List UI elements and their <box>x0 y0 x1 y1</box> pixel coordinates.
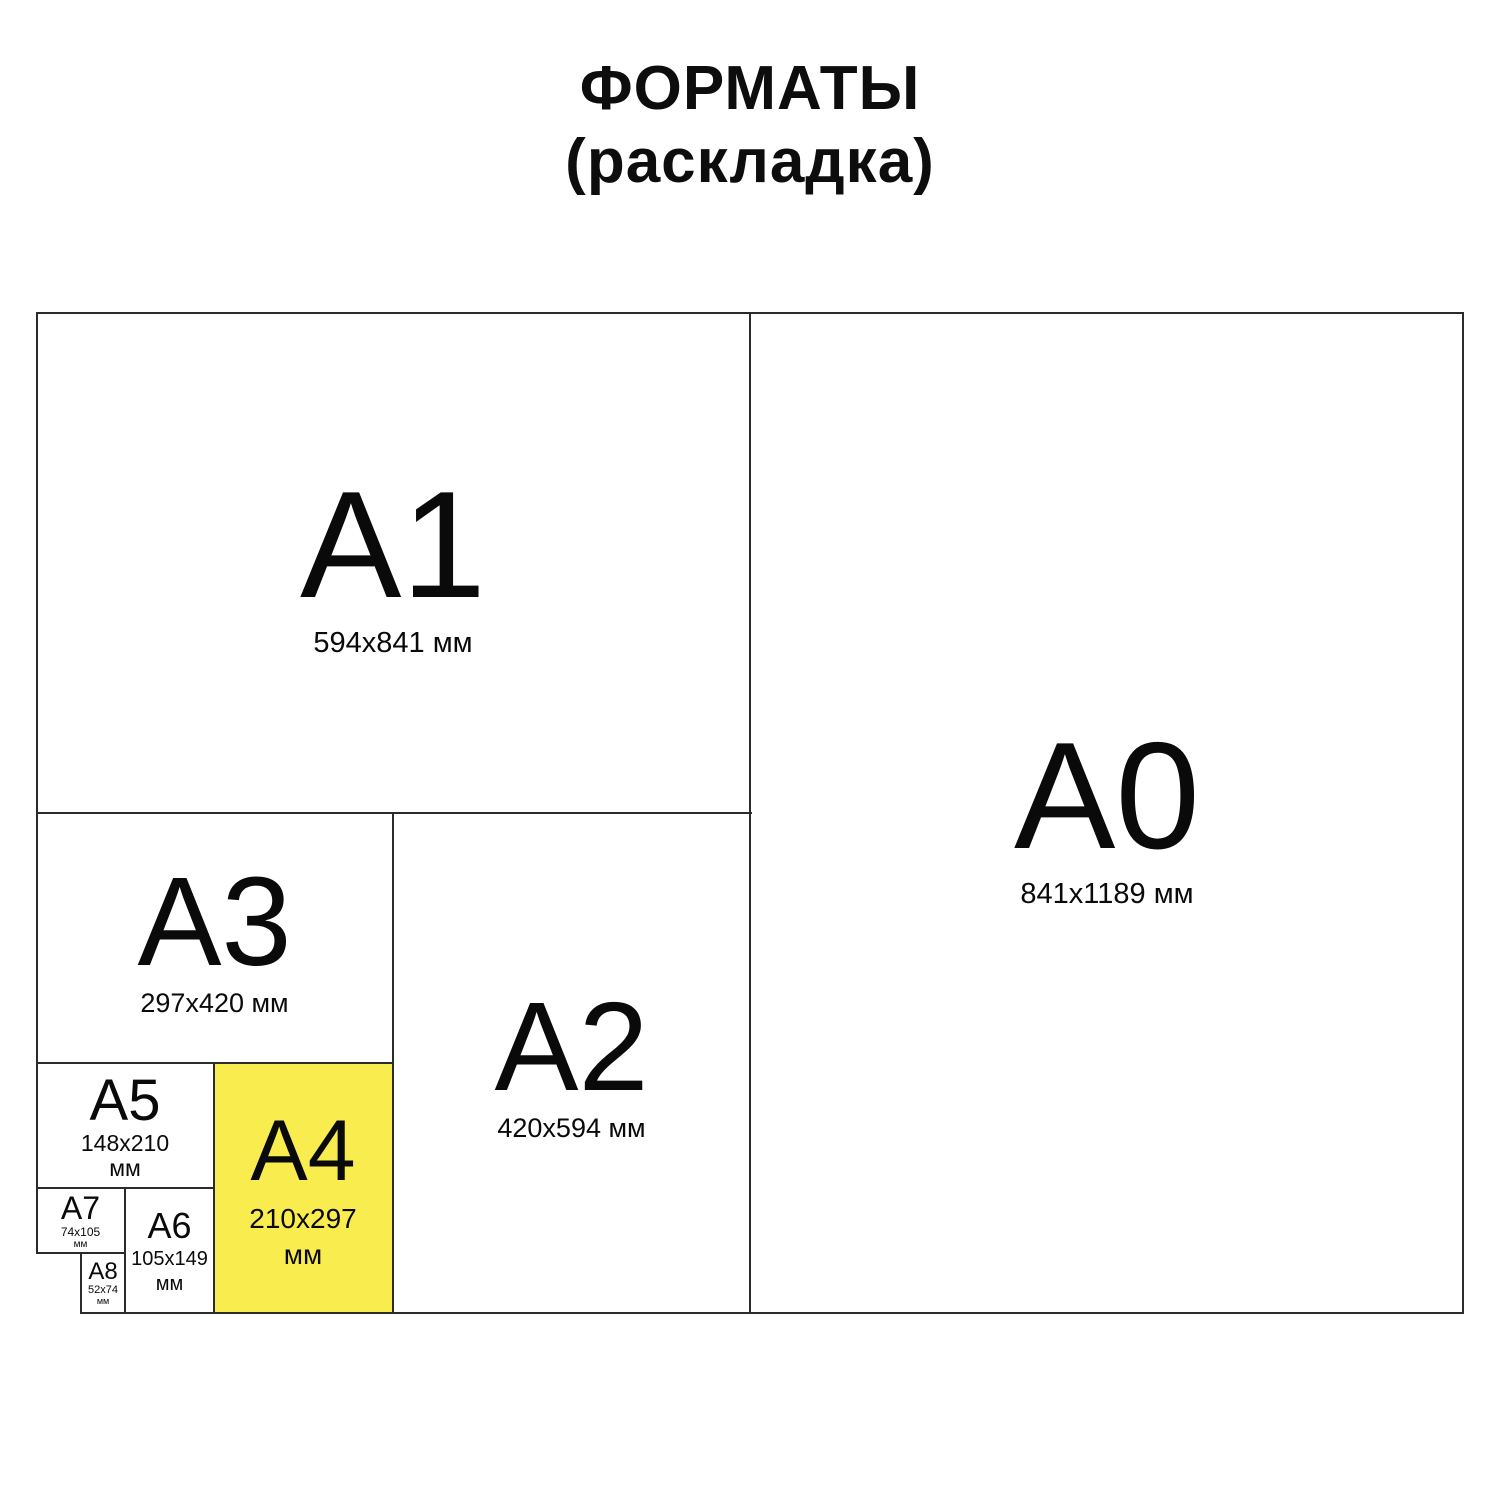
format-dimensions-a7-unit: мм <box>74 1240 88 1250</box>
format-box-a2: A2 420x594 мм <box>393 813 750 1313</box>
format-label-a8: A8 <box>88 1260 117 1284</box>
format-dimensions-a6-unit: мм <box>156 1274 184 1294</box>
paper-formats-diagram: A1 594x841 мм A0 841x1189 мм A3 297x420 … <box>0 0 1500 1500</box>
format-dimensions-a5-unit: мм <box>109 1157 141 1180</box>
format-dimensions-a4: 210x297 <box>249 1205 356 1233</box>
format-dimensions-a2: 420x594 мм <box>497 1115 645 1142</box>
page: ФОРМАТЫ (раскладка) A1 594x841 мм A0 841… <box>0 0 1500 1500</box>
format-dimensions-a1: 594x841 мм <box>313 629 472 658</box>
format-box-a0: A0 841x1189 мм <box>750 314 1464 1314</box>
format-dimensions-a8-unit: мм <box>97 1297 109 1306</box>
format-box-a1: A1 594x841 мм <box>36 314 750 812</box>
format-box-a4: A4 210x297 мм <box>213 1063 393 1313</box>
format-dimensions-a5: 148x210 <box>81 1132 169 1155</box>
format-box-a7: A7 74x105 мм <box>36 1188 125 1253</box>
format-box-a3: A3 297x420 мм <box>36 813 393 1063</box>
format-label-a2: A2 <box>494 984 648 1110</box>
format-label-a6: A6 <box>147 1208 191 1244</box>
format-dimensions-a0: 841x1189 мм <box>1020 880 1193 909</box>
format-label-a4: A4 <box>250 1108 355 1194</box>
format-box-a8: A8 52x74 мм <box>81 1253 125 1313</box>
format-box-a5: A5 148x210 мм <box>36 1063 214 1188</box>
format-dimensions-a4-unit: мм <box>284 1241 323 1269</box>
format-label-a3: A3 <box>137 859 291 985</box>
format-dimensions-a3: 297x420 мм <box>140 990 288 1017</box>
format-label-a7: A7 <box>61 1192 100 1224</box>
format-label-a0: A0 <box>1014 720 1200 872</box>
format-dimensions-a8: 52x74 <box>88 1285 118 1296</box>
format-label-a1: A1 <box>300 469 486 621</box>
format-label-a5: A5 <box>90 1072 161 1130</box>
format-box-a6: A6 105x149 мм <box>125 1188 214 1314</box>
format-dimensions-a7: 74x105 <box>61 1226 100 1238</box>
format-dimensions-a6: 105x149 <box>131 1249 208 1269</box>
